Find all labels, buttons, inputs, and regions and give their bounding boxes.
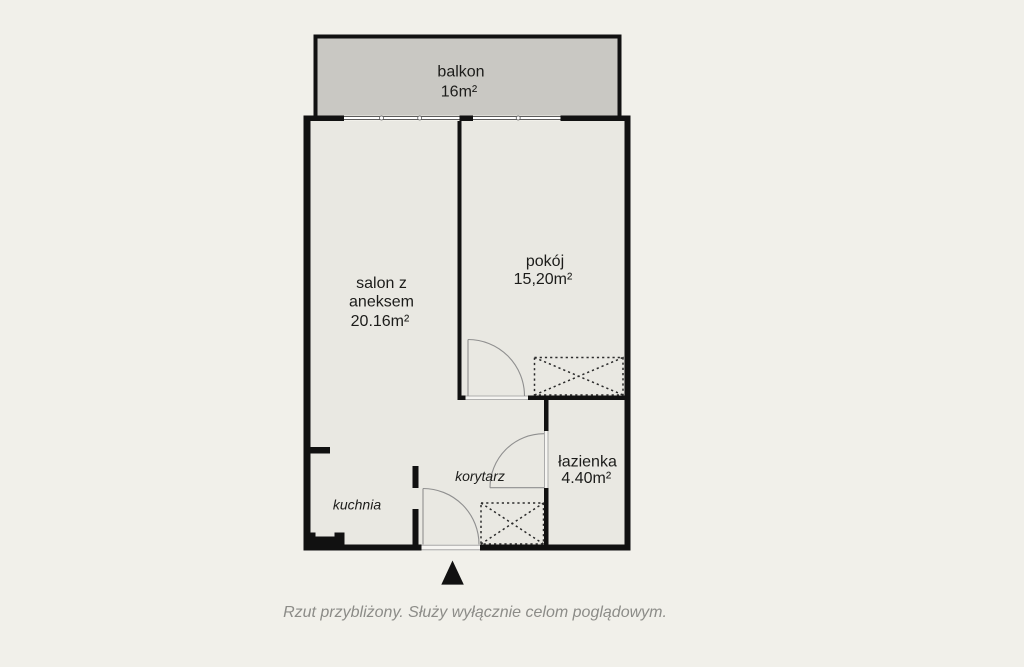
svg-text:4.40m²: 4.40m² [561,470,611,487]
svg-text:Rzut przybliżony. Służy wyłącz: Rzut przybliżony. Służy wyłącznie celom … [283,604,667,621]
svg-text:15,20m²: 15,20m² [514,271,573,288]
svg-text:korytarz: korytarz [455,468,505,484]
svg-text:balkon: balkon [437,64,484,81]
svg-text:aneksem: aneksem [349,294,414,311]
svg-text:20.16m²: 20.16m² [351,313,410,330]
svg-text:łazienka: łazienka [558,454,617,471]
svg-text:pokój: pokój [526,253,564,270]
svg-text:kuchnia: kuchnia [333,497,381,513]
svg-text:salon z: salon z [356,275,407,292]
svg-text:16m²: 16m² [441,83,478,100]
